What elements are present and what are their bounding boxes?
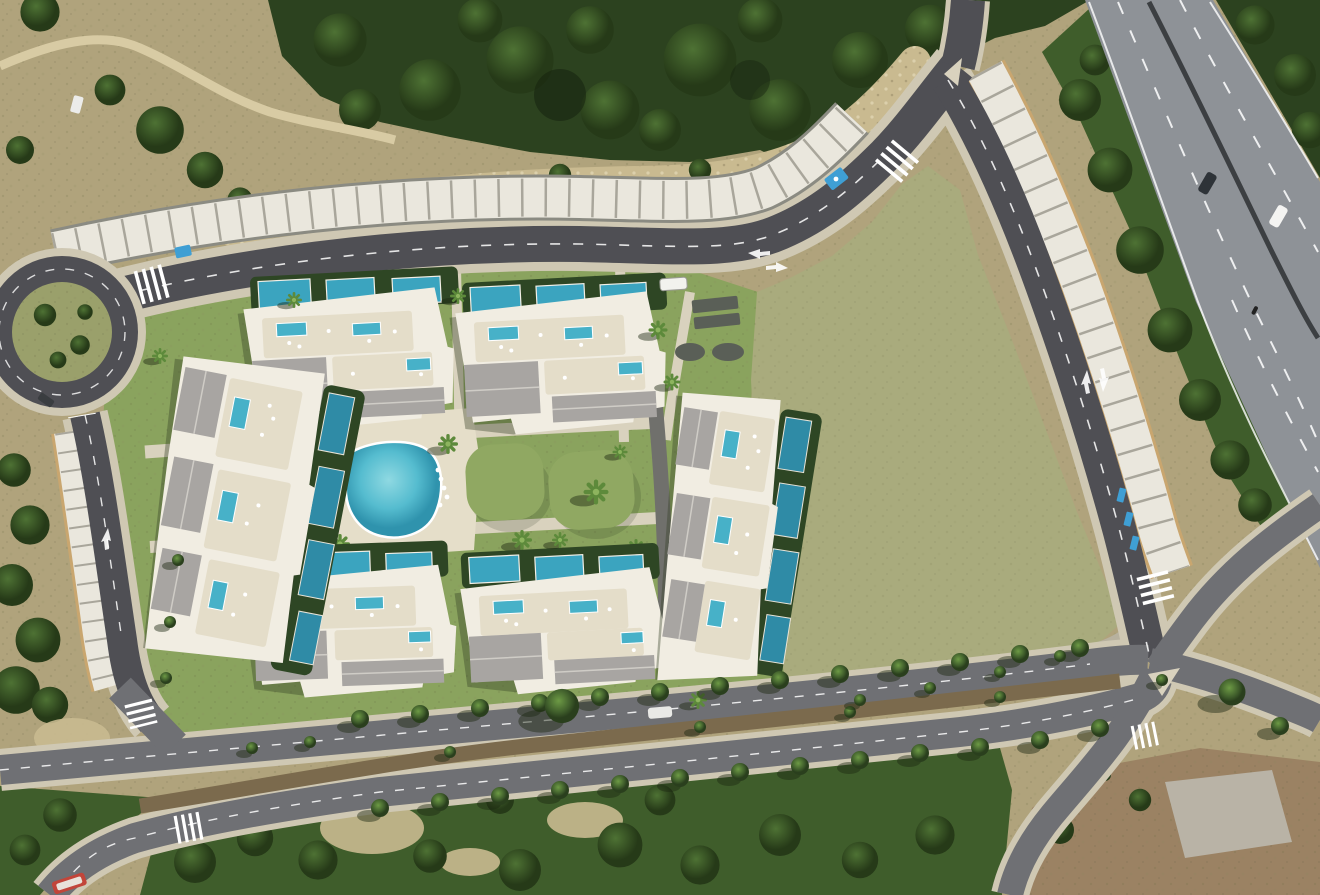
building-block-lower-2: [452, 542, 671, 697]
communal-pool-main: [346, 442, 441, 538]
garden-pool: [469, 555, 520, 584]
site-plan-canvas: [0, 0, 1320, 895]
white-car-boulevard: [648, 706, 673, 719]
white-van-loop-road: [660, 277, 688, 291]
concrete-pad: [1165, 770, 1292, 858]
aerial-site-plan: [0, 0, 1320, 895]
building-block-upper-2: [448, 272, 674, 437]
